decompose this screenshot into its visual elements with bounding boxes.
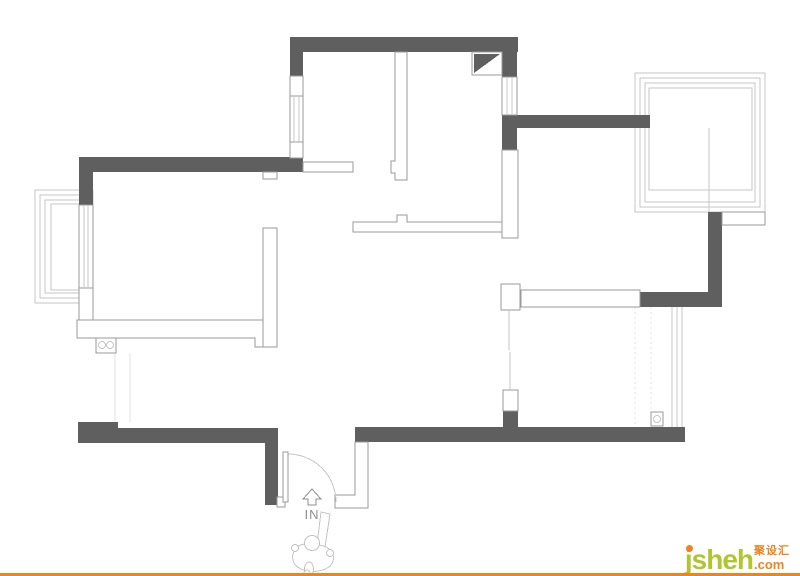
- wardrobe-sliding-lines: [635, 307, 682, 427]
- logo-wordmark: jsheh: [685, 549, 753, 571]
- window-mid-right: [502, 77, 517, 115]
- balcony-top-right: [635, 73, 765, 212]
- logo-text: jsheh: [685, 544, 753, 575]
- flue-duct-symbol: [472, 52, 502, 75]
- floor-drain-symbol: [651, 412, 663, 426]
- logo-domain-suffix: .com: [754, 558, 784, 571]
- door-leaf: [283, 452, 288, 502]
- up-arrow-icon: [303, 489, 321, 505]
- window-left: [79, 205, 93, 288]
- windows: [79, 77, 517, 288]
- site-logo: jsheh 聚设汇 .com: [685, 546, 790, 571]
- logo-side: 聚设汇 .com: [754, 546, 790, 571]
- entrance-label: IN: [297, 507, 327, 522]
- window-top-left: [290, 96, 303, 142]
- floor-plan-page: IN jsheh 聚设汇 .com: [0, 0, 800, 576]
- kitchen-counter-lines: [115, 353, 130, 422]
- logo-cjk-text: 聚设汇: [754, 546, 790, 557]
- logo-dot-icon: [686, 545, 693, 552]
- stove-symbol: [96, 338, 116, 353]
- floor-plan-drawing: [0, 0, 800, 576]
